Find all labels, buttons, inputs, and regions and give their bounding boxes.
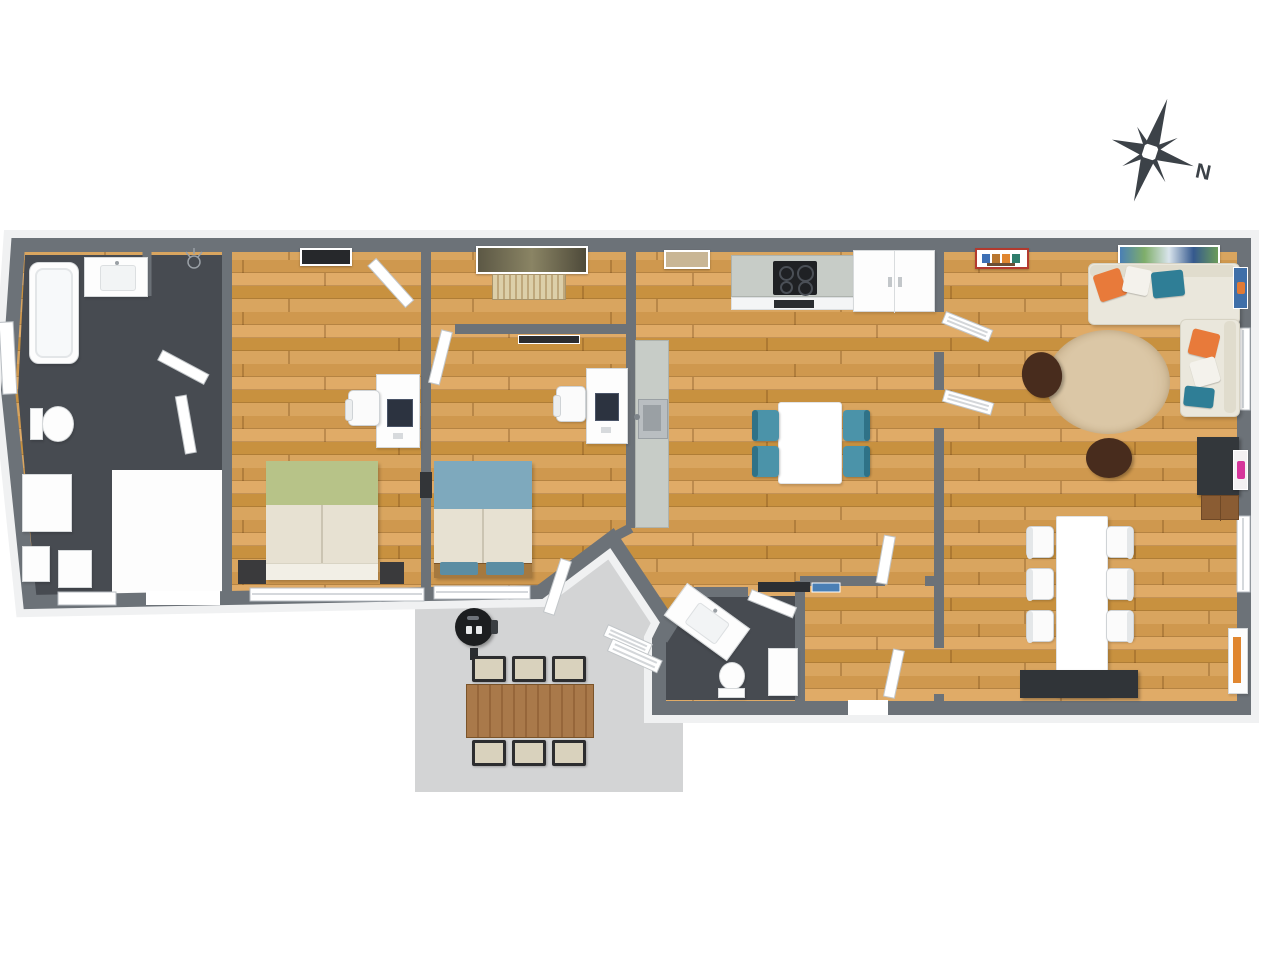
- teal-chair-4: [843, 446, 870, 477]
- pillow-teal-1: [1151, 269, 1186, 298]
- wc-wall-shelf: [758, 582, 810, 592]
- kitchen-cabinet-front: [731, 297, 855, 310]
- outdoor-chair-6: [552, 740, 586, 766]
- entry-nook-floor: [112, 470, 231, 596]
- white-chair-2: [1026, 568, 1054, 600]
- bedroom1-double-bed: [266, 461, 378, 579]
- bedroom2-wall-art-large: [476, 246, 588, 274]
- bathtub: [29, 262, 79, 364]
- sideboard: [1020, 670, 1138, 698]
- living-red-frame-art: [975, 248, 1029, 269]
- cooktop: [773, 261, 817, 295]
- teal-chair-2: [752, 446, 779, 477]
- white-chair-5: [1106, 568, 1134, 600]
- white-chair-4: [1106, 526, 1134, 558]
- bedroom2-nightstand: [420, 472, 432, 498]
- bbq-grill: [455, 608, 493, 646]
- teal-chair-1: [752, 410, 779, 441]
- storage-box-2: [58, 550, 92, 588]
- pillow-teal-2: [1183, 385, 1215, 408]
- white-chair-3: [1026, 610, 1054, 642]
- oven: [774, 300, 814, 308]
- round-rug: [1046, 330, 1170, 434]
- floor-plan-canvas: N: [0, 0, 1280, 960]
- display-cabinet: [1228, 628, 1248, 694]
- white-chair-6: [1106, 610, 1134, 642]
- toilet-bowl: [42, 406, 74, 442]
- front-door-opening: [848, 700, 888, 715]
- island-sink: [638, 399, 668, 439]
- bedroom1-wall-art: [300, 248, 352, 266]
- bedroom1-office-chair: [348, 390, 380, 426]
- bedroom2-office-chair: [556, 386, 586, 422]
- pouf-2: [1086, 438, 1132, 478]
- wall-art-pink: [1233, 450, 1248, 490]
- outdoor-dining-table: [466, 684, 594, 738]
- bedroom1-nightstand-left: [238, 560, 266, 584]
- outdoor-chair-5: [512, 740, 546, 766]
- kitchen-island: [635, 340, 669, 528]
- white-chair-1: [1026, 526, 1054, 558]
- kitchen-dining-table: [778, 402, 842, 484]
- outdoor-chair-2: [512, 656, 546, 682]
- bedroom2-double-bed: [434, 461, 532, 577]
- tall-cabinet-fridge: [853, 250, 935, 312]
- entry-nook-opening: [146, 591, 220, 605]
- compass-rose: [1096, 86, 1211, 215]
- media-drawer: [1201, 495, 1239, 520]
- bedroom2-wall-art-small: [518, 335, 580, 344]
- long-dining-table: [1056, 516, 1108, 696]
- outdoor-chair-1: [472, 656, 506, 682]
- kitchen-counter: [731, 255, 855, 297]
- wall-art-blue: [1233, 267, 1248, 309]
- wc-cabinet: [768, 648, 798, 696]
- wc-toilet-tank: [718, 688, 745, 698]
- bedroom2-desk: [586, 368, 628, 444]
- bedroom1-nightstand-right: [380, 562, 404, 584]
- bathroom-small-window: [58, 592, 116, 605]
- bathroom-vanity-sink: [84, 257, 148, 297]
- teal-chair-3: [843, 410, 870, 441]
- washer: [22, 474, 72, 532]
- outdoor-chair-4: [472, 740, 506, 766]
- outdoor-chair-3: [552, 656, 586, 682]
- compass-north-label: N: [1193, 159, 1213, 185]
- bedroom2-radiator: [492, 274, 566, 300]
- storage-box-1: [22, 546, 50, 582]
- pillow-white-1: [1122, 266, 1153, 297]
- entry-doormat: [812, 583, 840, 592]
- kitchen-wall-art: [664, 250, 710, 269]
- bedroom1-desk: [376, 374, 420, 448]
- wc-toilet-bowl: [719, 662, 745, 690]
